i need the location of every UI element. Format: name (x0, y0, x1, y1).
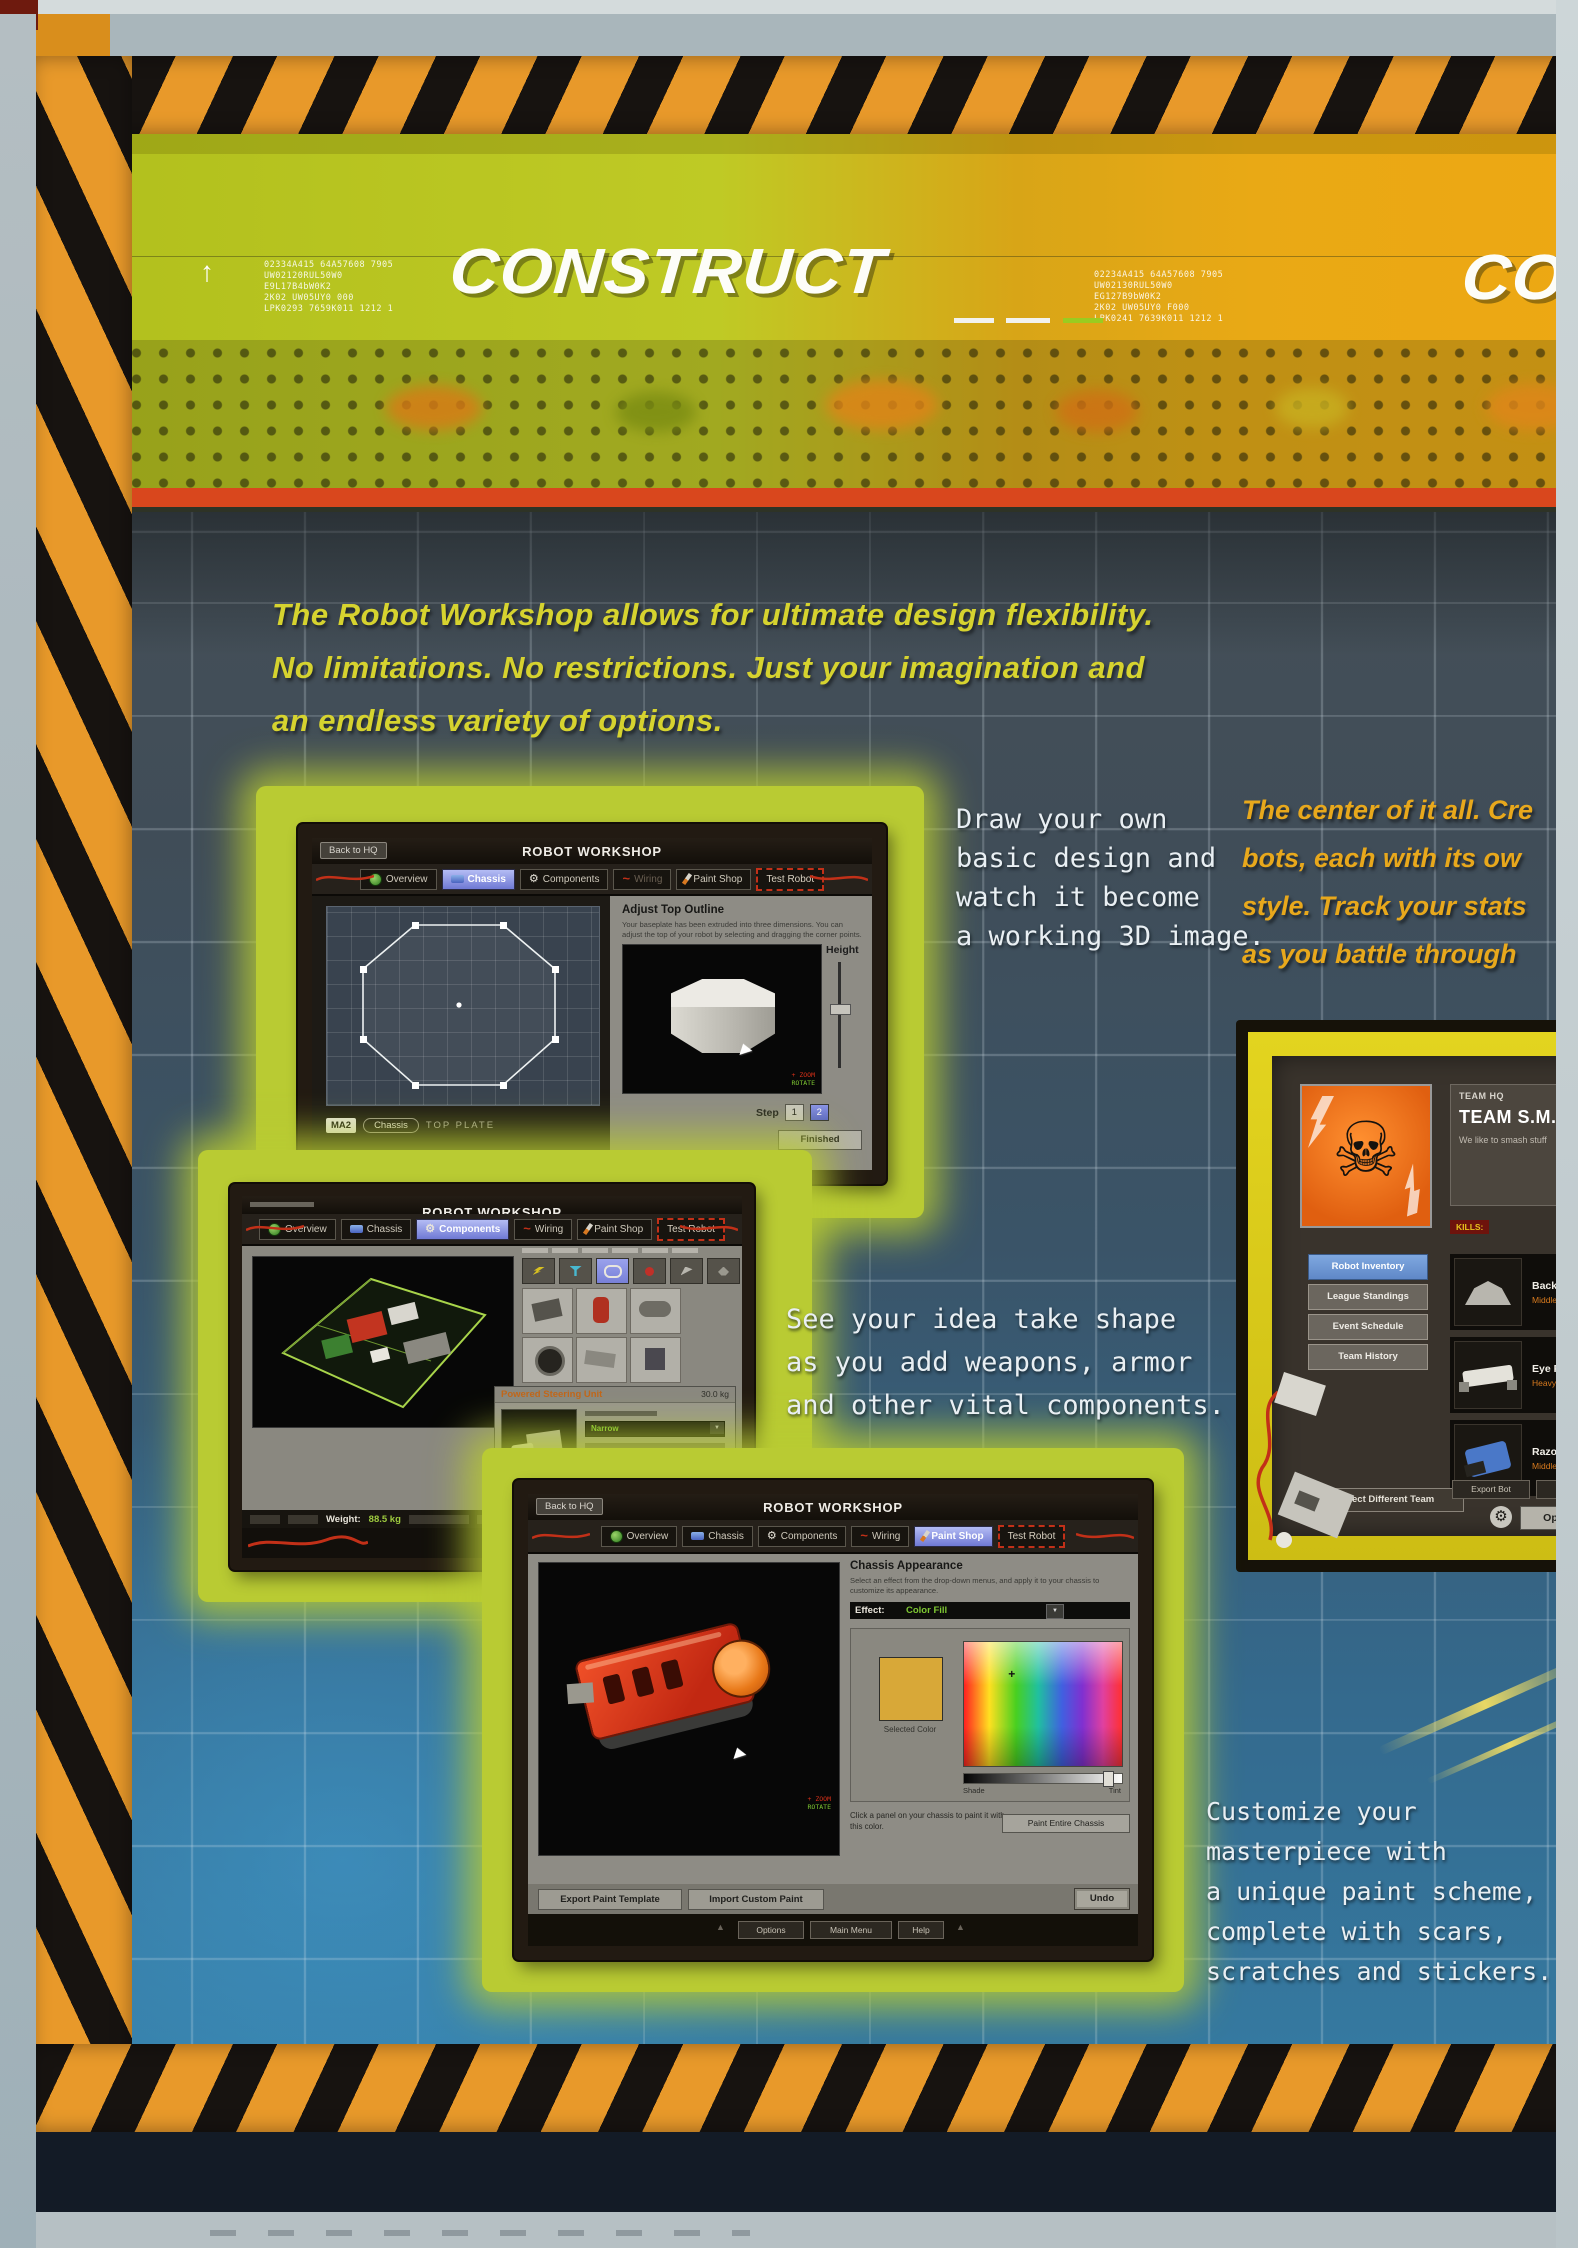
machine-blob (826, 380, 938, 430)
height-label: Height (826, 944, 859, 956)
shade-label: Shade (963, 1786, 985, 1795)
appearance-desc: customize its appearance. (850, 1586, 1099, 1596)
wire-decoration (680, 1220, 738, 1236)
export-paint-template-button[interactable]: Export Paint Template (538, 1889, 682, 1910)
component-thumb[interactable] (522, 1337, 573, 1383)
banner-bottom-edge (96, 507, 1578, 512)
wire-decoration (248, 1534, 368, 1552)
adjust-title: Adjust Top Outline (622, 904, 724, 916)
caption-customize: Customize yourmasterpiece with a unique … (1206, 1792, 1552, 1992)
tab-paint-shop[interactable]: Paint Shop (914, 1526, 992, 1547)
machine-blob (1056, 390, 1138, 432)
robot-thumb (1454, 1258, 1522, 1326)
components-3d-viewport[interactable] (252, 1256, 514, 1428)
gear-icon[interactable]: ⚙ (1490, 1506, 1512, 1528)
bottom-edge-marks (210, 2230, 750, 2236)
banner-red-stripe (96, 488, 1578, 507)
chassis-icon (451, 875, 464, 883)
components-gear-icon: ⚙ (529, 874, 539, 885)
detail-weight: 30.0 kg (701, 1389, 729, 1399)
effect-dropdown-icon[interactable]: ▼ (1046, 1604, 1064, 1619)
workshop-tabbar: Overview Chassis ⚙Components ~Wiring Pai… (528, 1520, 1138, 1554)
adjust-desc: Your baseplate has been extruded into th… (622, 920, 862, 930)
category-motors[interactable] (596, 1258, 629, 1284)
bottom-dark-band (34, 2128, 1578, 2224)
weight-label: Weight: (326, 1514, 361, 1525)
effect-bar: Effect: Color Fill ▼ (850, 1602, 1130, 1619)
paint-brush-icon (682, 873, 692, 885)
category-tabs (522, 1258, 740, 1284)
category-misc[interactable] (707, 1258, 740, 1284)
tab-overview[interactable]: Overview (601, 1526, 678, 1547)
blurred-stat (288, 1515, 318, 1524)
click-hint: Click a panel on your chassis to paint i… (850, 1810, 1016, 1821)
tab-chassis[interactable]: Chassis (682, 1526, 753, 1547)
paint-3d-viewport[interactable]: + ZOOM ROTATE (538, 1562, 840, 1856)
bottom-bar: ▲ Options Main Menu Help ▲ (528, 1914, 1138, 1946)
shade-tint-slider[interactable] (963, 1773, 1123, 1784)
detail-title: Powered Steering Unit (501, 1389, 602, 1400)
screenshot-team-hq: ☠ TEAM HQ TEAM S.M.A.S We like to smash … (1272, 1056, 1578, 1536)
wiring-icon: ~ (523, 1224, 531, 1234)
intro-line: an endless variety of options. (272, 694, 1154, 747)
wiring-icon: ~ (622, 874, 630, 884)
step-label: Step (756, 1107, 779, 1119)
export-bot-button[interactable]: Export Bot (1452, 1480, 1530, 1499)
component-thumb[interactable] (522, 1288, 573, 1334)
category-tech[interactable] (633, 1258, 666, 1284)
component-thumb[interactable] (576, 1337, 627, 1383)
chassis-body-left: MA2 Chassis TOP PLATE (312, 896, 610, 1170)
up-arrow-icon: ▲ (716, 1922, 725, 1932)
chassis-3d-viewport[interactable]: + ZOOM ROTATE (622, 944, 822, 1094)
caption-draw: Draw your ownbasic design and watch it b… (956, 800, 1265, 956)
screenshot-paint-shop: Back to HQ ROBOT WORKSHOP Overview Chass… (514, 1480, 1152, 1960)
category-labels (522, 1248, 734, 1257)
intro-line: No limitations. No restrictions. Just yo… (272, 641, 1154, 694)
height-slider[interactable] (838, 962, 841, 1068)
workshop-title: ROBOT WORKSHOP (242, 1205, 742, 1214)
hazard-stripe-bottom (30, 2044, 1578, 2132)
tab-wiring[interactable]: ~Wiring (514, 1219, 572, 1240)
wire-decoration (316, 870, 374, 886)
paint-entire-chassis-button[interactable]: Paint Entire Chassis (1002, 1814, 1130, 1833)
paint-brush-icon (920, 1530, 930, 1542)
paint-brush-icon (583, 1223, 593, 1235)
overview-icon (610, 1530, 623, 1543)
wire-decoration (810, 870, 868, 886)
step-2-button[interactable]: 2 (810, 1104, 829, 1121)
effect-value: Color Fill (906, 1605, 947, 1616)
adjust-desc: adjust the top of your robot by selectin… (622, 930, 862, 940)
chassis-icon (350, 1225, 363, 1233)
intro-line: The Robot Workshop allows for ultimate d… (272, 588, 1154, 641)
click-hint: this color. (850, 1821, 1016, 1832)
weight-value: 88.5 kg (369, 1514, 401, 1525)
hazard-stripe-top (30, 56, 1578, 134)
help-button[interactable]: Help (898, 1921, 944, 1939)
blurred-stat (409, 1515, 469, 1524)
robot-part (567, 1682, 594, 1704)
height-slider-handle[interactable] (830, 1004, 851, 1015)
tab-chassis[interactable]: Chassis (442, 869, 515, 890)
tab-components[interactable]: ⚙Components (416, 1219, 509, 1240)
motor-wire-decoration (1248, 1372, 1378, 1552)
tint-label: Tint (1109, 1786, 1121, 1795)
workshop-titlebar: Back to HQ ROBOT WORKSHOP (312, 838, 872, 864)
tab-wiring[interactable]: ~Wiring (613, 869, 671, 890)
machine-blob (1276, 388, 1348, 428)
appearance-desc: Select an effect from the drop-down menu… (850, 1576, 1099, 1586)
chassis-icon (691, 1532, 704, 1540)
banner-code-left: 02334A415 64A57608 7905UW02120RUL50W0 E9… (264, 260, 393, 315)
menu-event-schedule[interactable]: Event Schedule (1308, 1314, 1428, 1340)
category-weapons[interactable] (670, 1258, 703, 1284)
box-edge-top (0, 0, 1578, 14)
team-hq-label: TEAM HQ (1459, 1091, 1504, 1101)
cursor-icon (739, 1044, 753, 1059)
banner-arrow: ↑ (200, 256, 214, 288)
picker-crosshair-icon: + (1008, 1667, 1015, 1681)
detail-dropdown[interactable]: Narrow ▼ (585, 1421, 725, 1437)
slider-handle[interactable] (1103, 1771, 1114, 1787)
wire-decoration (532, 1528, 590, 1544)
tab-wiring[interactable]: ~Wiring (851, 1526, 909, 1547)
team-motto: We like to smash stuff (1459, 1135, 1547, 1145)
screenshot-chassis-editor: Back to HQ ROBOT WORKSHOP Overview Chass… (298, 824, 886, 1184)
selected-color-swatch[interactable] (879, 1657, 943, 1721)
intro-paragraph: The Robot Workshop allows for ultimate d… (272, 588, 1154, 747)
tab-components[interactable]: ⚙Components (520, 869, 609, 890)
step-1-button[interactable]: 1 (785, 1104, 804, 1121)
machine-blob (386, 386, 482, 430)
box-edge-left (0, 14, 36, 2248)
components-gear-icon: ⚙ (425, 1224, 435, 1235)
workshop-title: ROBOT WORKSHOP (312, 844, 872, 859)
banner-code-right: 02234A415 64A57608 7905UW02130RUL50W0 EG… (1094, 270, 1223, 325)
dropdown-arrow-icon[interactable]: ▼ (710, 1422, 724, 1434)
workshop-titlebar: ROBOT WORKSHOP (242, 1196, 742, 1214)
hazard-stripe-left (30, 56, 132, 2132)
badge: MA2 (326, 1118, 356, 1133)
component-thumb[interactable] (630, 1337, 681, 1383)
viewport-hints: + ZOOM ROTATE (808, 1795, 831, 1811)
wire-decoration (246, 1220, 304, 1236)
plate-label: TOP PLATE (426, 1120, 495, 1131)
dropdown-value: Narrow (591, 1424, 619, 1433)
viewport-hints: + ZOOM ROTATE (792, 1071, 815, 1087)
caption-center-of-it-all: The center of it all. Crebots, each with… (1242, 786, 1578, 978)
finished-button[interactable]: Finished (778, 1130, 862, 1150)
undo-button[interactable]: Undo (1074, 1888, 1130, 1910)
tab-test-robot[interactable]: Test Robot (998, 1525, 1066, 1548)
tab-chassis[interactable]: Chassis (341, 1219, 412, 1240)
caption-take-shape: See your idea take shapeas you add weapo… (786, 1298, 1225, 1427)
category-power[interactable] (522, 1258, 555, 1284)
construct-title: CONSTRUCT (447, 234, 888, 308)
tab-paint-shop[interactable]: Paint Shop (676, 869, 751, 890)
prism-body (671, 1007, 775, 1053)
banner-dashes (954, 310, 1103, 328)
effect-label: Effect: (855, 1605, 885, 1616)
paint-footer: Export Paint Template Import Custom Pain… (528, 1884, 1138, 1914)
selected-color-label: Selected Color (859, 1725, 961, 1734)
component-thumb[interactable] (630, 1288, 681, 1334)
construct-banner: ↑ 02334A415 64A57608 7905UW02120RUL50W0 … (96, 128, 1578, 512)
adjust-panel: Adjust Top Outline Your baseplate has be… (610, 896, 872, 1170)
components-gear-icon: ⚙ (767, 1531, 777, 1542)
blurred-text (585, 1411, 657, 1416)
color-gradient-picker[interactable]: + (963, 1641, 1123, 1767)
up-arrow-icon: ▲ (956, 1922, 965, 1932)
tab-paint-shop[interactable]: Paint Shop (577, 1219, 652, 1240)
team-logo[interactable]: ☠ (1300, 1084, 1432, 1228)
box-edge-right (1556, 0, 1578, 2248)
chassis-bottom-bar: MA2 Chassis TOP PLATE (326, 1114, 598, 1136)
kills-badge: KILLS: (1450, 1220, 1489, 1234)
color-picker-panel: Selected Color + Shade Tint (850, 1628, 1130, 1802)
wire-decoration (1076, 1528, 1134, 1544)
blurred-stat (250, 1515, 280, 1524)
options-button[interactable]: Options (738, 1921, 804, 1939)
banner-perforated-strip (96, 340, 1578, 488)
machine-blob (616, 392, 696, 432)
appearance-title: Chassis Appearance (850, 1560, 963, 1572)
chassis-pill[interactable]: Chassis (363, 1118, 419, 1133)
outline-grid-panel[interactable] (326, 906, 600, 1106)
menu-league-standings[interactable]: League Standings (1308, 1284, 1428, 1310)
main-menu-button[interactable]: Main Menu (810, 1921, 892, 1939)
workshop-title: ROBOT WORKSHOP (528, 1500, 1138, 1515)
menu-team-history[interactable]: Team History (1308, 1344, 1428, 1370)
workshop-titlebar: Back to HQ ROBOT WORKSHOP (528, 1494, 1138, 1520)
workshop-tabbar: Overview Chassis ⚙Components ~Wiring Pai… (312, 864, 872, 896)
component-thumb[interactable] (576, 1288, 627, 1334)
category-drivetrain[interactable] (559, 1258, 592, 1284)
tab-components[interactable]: ⚙Components (758, 1526, 847, 1547)
menu-robot-inventory[interactable]: Robot Inventory (1308, 1254, 1428, 1280)
appearance-panel: Chassis Appearance Select an effect from… (850, 1560, 1130, 1876)
workshop-tabbar: Overview Chassis ⚙Components ~Wiring Pai… (242, 1214, 742, 1246)
wiring-icon: ~ (860, 1531, 868, 1541)
robot-thumb (1454, 1341, 1522, 1409)
import-custom-paint-button[interactable]: Import Custom Paint (688, 1889, 824, 1910)
